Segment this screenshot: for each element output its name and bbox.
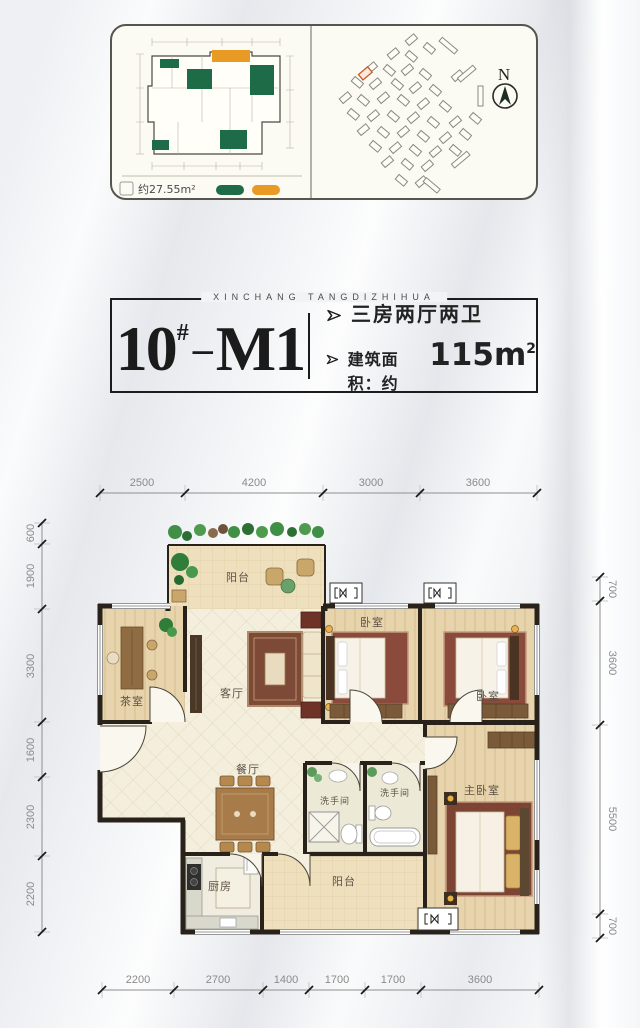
feature-area-sup: 2 bbox=[526, 341, 536, 357]
unit-separator: – bbox=[193, 329, 213, 369]
svg-text:1400: 1400 bbox=[274, 974, 298, 986]
mini-floor-plan: 约27.55m² bbox=[120, 38, 302, 196]
svg-text:1600: 1600 bbox=[25, 738, 37, 762]
dims-left: 600 1900 3300 1600 2300 2200 bbox=[25, 524, 37, 906]
summary-panel: 约27.55m² bbox=[110, 24, 538, 200]
unit-superscript: # bbox=[177, 321, 189, 345]
site-highlighted-building bbox=[358, 67, 372, 80]
room-label-balcony-top: 阳台 bbox=[226, 570, 250, 584]
svg-text:2500: 2500 bbox=[130, 477, 154, 489]
svg-text:3600: 3600 bbox=[606, 651, 618, 675]
svg-text:1700: 1700 bbox=[381, 974, 405, 986]
room-label-dining-room: 餐厅 bbox=[236, 762, 260, 776]
svg-text:4200: 4200 bbox=[242, 477, 266, 489]
summary-panel-graphic: 约27.55m² bbox=[112, 26, 536, 198]
north-compass: N bbox=[493, 65, 517, 108]
svg-text:3000: 3000 bbox=[359, 477, 383, 489]
svg-text:3300: 3300 bbox=[25, 654, 37, 678]
unit-title: 10#–M1 bbox=[112, 311, 308, 381]
feature-area: 建筑面积：约115m2 bbox=[326, 340, 536, 394]
feature-area-value: 115m bbox=[429, 340, 526, 371]
svg-text:2700: 2700 bbox=[206, 974, 230, 986]
area-box-icon bbox=[120, 182, 133, 195]
svg-text:5500: 5500 bbox=[606, 807, 618, 831]
room-label-bathroom-2: 洗手间 bbox=[380, 787, 410, 799]
room-label-living-room: 客厅 bbox=[220, 686, 244, 700]
site-plan: N bbox=[339, 34, 517, 193]
svg-text:1700: 1700 bbox=[325, 974, 349, 986]
svg-text:2200: 2200 bbox=[25, 882, 37, 906]
svg-text:3600: 3600 bbox=[468, 974, 492, 986]
title-block: XINCHANG TANGDIZHIHUA 10#–M1 三房两厅两卫 建筑面积… bbox=[110, 298, 538, 393]
svg-text:2200: 2200 bbox=[126, 974, 150, 986]
room-label-bathroom-1: 洗手间 bbox=[320, 795, 350, 807]
mini-plan-area-label: 约27.55m² bbox=[138, 183, 196, 196]
svg-text:1900: 1900 bbox=[25, 564, 37, 588]
arrow-bullet-icon bbox=[326, 309, 343, 322]
dims-top: 2500 4200 3000 3600 bbox=[130, 477, 490, 489]
legend-orange-swatch bbox=[252, 185, 280, 195]
room-label-bedroom-1: 卧室 bbox=[360, 615, 384, 629]
unit-model: M1 bbox=[216, 317, 304, 381]
project-subtitle: XINCHANG TANGDIZHIHUA bbox=[201, 292, 447, 302]
room-label-kitchen: 厨房 bbox=[208, 880, 232, 893]
svg-text:700: 700 bbox=[606, 580, 618, 598]
room-label-master-bedroom: 主卧室 bbox=[464, 783, 500, 797]
compass-needle-icon bbox=[499, 86, 511, 105]
svg-text:2300: 2300 bbox=[25, 805, 37, 829]
legend-green-swatch bbox=[216, 185, 244, 195]
floor-plan: 2500 4200 3000 3600 2200 2700 1400 1700 … bbox=[20, 440, 620, 1010]
north-label: N bbox=[498, 65, 510, 84]
mini-plan-orange-room bbox=[212, 50, 250, 62]
dims-right: 700 3600 5500 700 bbox=[606, 580, 618, 935]
feature-area-prefix: 建筑面积：约 bbox=[348, 346, 430, 394]
page: 约27.55m² bbox=[0, 0, 640, 1028]
unit-number: 10 bbox=[116, 317, 176, 381]
arrow-bullet-icon bbox=[326, 353, 340, 366]
room-label-balcony-bottom: 阳台 bbox=[332, 874, 356, 888]
svg-text:600: 600 bbox=[25, 524, 37, 542]
room-label-tea-room: 茶室 bbox=[120, 694, 144, 708]
svg-text:700: 700 bbox=[606, 917, 618, 935]
room-label-bedroom-2: 卧室 bbox=[476, 689, 500, 703]
svg-text:3600: 3600 bbox=[466, 477, 490, 489]
